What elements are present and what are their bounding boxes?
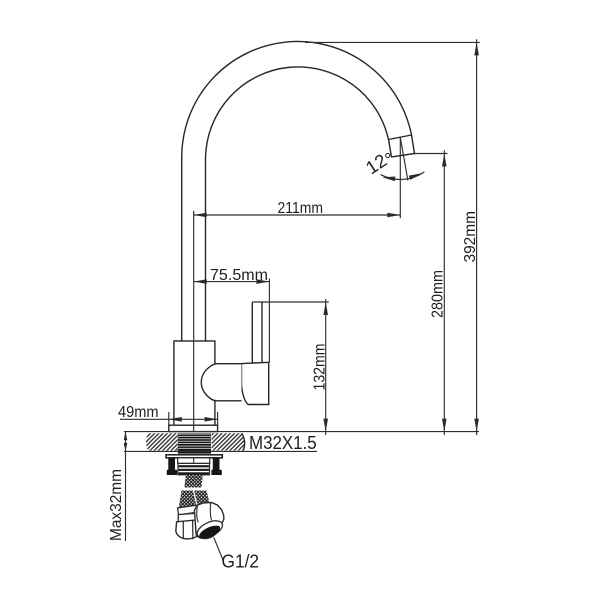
svg-text:75.5mm: 75.5mm (210, 267, 268, 284)
svg-text:132mm: 132mm (312, 344, 329, 391)
svg-text:Max32mm: Max32mm (108, 469, 125, 541)
svg-text:M32X1.5: M32X1.5 (249, 432, 317, 453)
svg-text:G1/2: G1/2 (222, 552, 260, 572)
svg-text:392mm: 392mm (462, 211, 479, 263)
svg-text:49mm: 49mm (118, 404, 159, 421)
svg-text:12°: 12° (362, 145, 399, 181)
svg-text:211mm: 211mm (278, 200, 324, 217)
svg-text:280mm: 280mm (430, 270, 447, 318)
